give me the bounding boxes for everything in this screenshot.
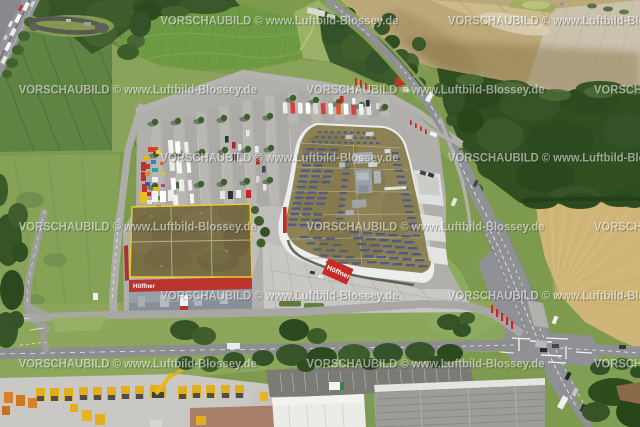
svg-text:Höffner: Höffner xyxy=(133,283,156,290)
svg-text:VORSCHAUBILD © www.Luftbild-Bl: VORSCHAUBILD © www.Luftbild-Blossey.de xyxy=(19,85,257,97)
svg-text:VORSCHAUBILD © www.Luftbild-Bl: VORSCHAUBILD © www.Luftbild-Blossey.de xyxy=(594,85,640,97)
svg-text:VORSCHAUBILD © www.Luftbild-Bl: VORSCHAUBILD © www.Luftbild-Blossey.de xyxy=(307,359,545,371)
svg-text:VORSCHAUBILD © www.Luftbild-Bl: VORSCHAUBILD © www.Luftbild-Blossey.de xyxy=(448,16,640,28)
svg-text:VORSCHAUBILD © www.Luftbild-Bl: VORSCHAUBILD © www.Luftbild-Blossey.de xyxy=(161,16,399,28)
svg-text:VORSCHAUBILD © www.Luftbild-Bl: VORSCHAUBILD © www.Luftbild-Blossey.de xyxy=(448,291,640,303)
svg-text:VORSCHAUBILD © www.Luftbild-Bl: VORSCHAUBILD © www.Luftbild-Blossey.de xyxy=(448,153,640,165)
svg-text:VORSCHAUBILD © www.Luftbild-Bl: VORSCHAUBILD © www.Luftbild-Blossey.de xyxy=(161,153,399,165)
svg-text:VORSCHAUBILD © www.Luftbild-Bl: VORSCHAUBILD © www.Luftbild-Blossey.de xyxy=(594,359,640,371)
svg-text:VORSCHAUBILD © www.Luftbild-Bl: VORSCHAUBILD © www.Luftbild-Blossey.de xyxy=(19,359,257,371)
svg-text:VORSCHAUBILD © www.Luftbild-Bl: VORSCHAUBILD © www.Luftbild-Blossey.de xyxy=(594,222,640,234)
svg-text:VORSCHAUBILD © www.Luftbild-Bl: VORSCHAUBILD © www.Luftbild-Blossey.de xyxy=(307,222,545,234)
svg-text:VORSCHAUBILD © www.Luftbild-Bl: VORSCHAUBILD © www.Luftbild-Blossey.de xyxy=(19,222,257,234)
svg-text:VORSCHAUBILD © www.Luftbild-Bl: VORSCHAUBILD © www.Luftbild-Blossey.de xyxy=(307,85,545,97)
svg-text:VORSCHAUBILD © www.Luftbild-Bl: VORSCHAUBILD © www.Luftbild-Blossey.de xyxy=(161,291,399,303)
